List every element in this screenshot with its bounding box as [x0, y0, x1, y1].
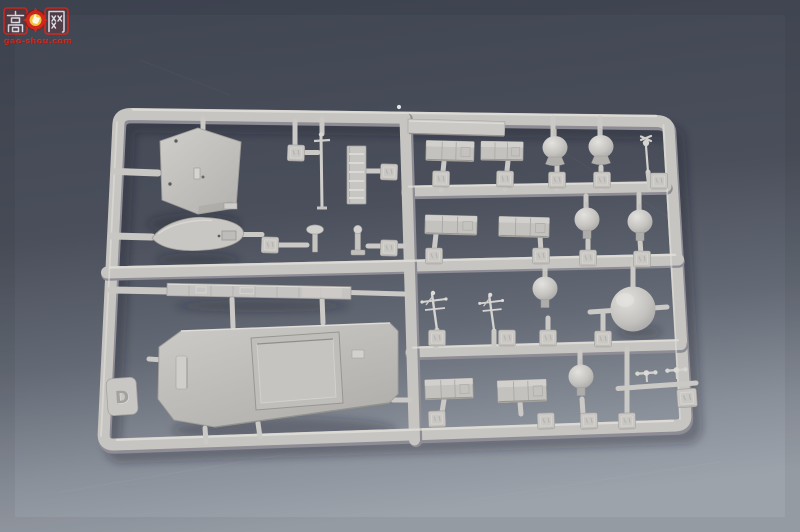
ladder-rack	[347, 146, 366, 204]
part-number-tag	[595, 331, 612, 347]
sprue-photo-canvas: D D	[0, 0, 800, 532]
part-number-tag	[499, 330, 516, 346]
part-number-tag	[380, 164, 398, 181]
deck-beam	[408, 119, 505, 136]
part-number-tag	[261, 237, 279, 254]
part-number-tag	[549, 172, 566, 188]
equipment-box-6	[497, 379, 547, 403]
part-number-tag	[580, 413, 598, 430]
photo-of-model-kit-sprue: D D	[0, 0, 800, 532]
large-radome-sphere	[611, 287, 656, 332]
part-number-tag	[426, 248, 443, 264]
part-number-tag	[429, 330, 446, 346]
part-number-tag	[634, 251, 651, 267]
sprue-letter-tab: D D	[106, 377, 139, 416]
dust-speck	[397, 105, 401, 109]
sprue-letter: D	[114, 388, 129, 409]
part-number-tag	[380, 240, 398, 257]
equipment-box-5	[425, 378, 474, 400]
part-number-tag	[677, 388, 698, 408]
equipment-box-1	[426, 140, 475, 161]
part-number-tag	[618, 413, 636, 430]
equipment-box-2	[481, 141, 524, 161]
part-number-tag	[432, 171, 449, 187]
equipment-box-3	[425, 215, 477, 235]
part-number-tag	[496, 171, 513, 187]
part-number-tag	[580, 250, 597, 266]
part-number-tag	[651, 173, 668, 189]
part-number-tag	[537, 413, 555, 430]
part-number-tag	[533, 248, 550, 264]
part-number-tag	[287, 145, 305, 162]
part-number-tag	[428, 411, 446, 428]
part-number-tag	[594, 172, 611, 188]
equipment-box-4	[499, 216, 550, 237]
flat-bridge-plate	[160, 128, 241, 214]
part-number-tag	[540, 330, 557, 346]
